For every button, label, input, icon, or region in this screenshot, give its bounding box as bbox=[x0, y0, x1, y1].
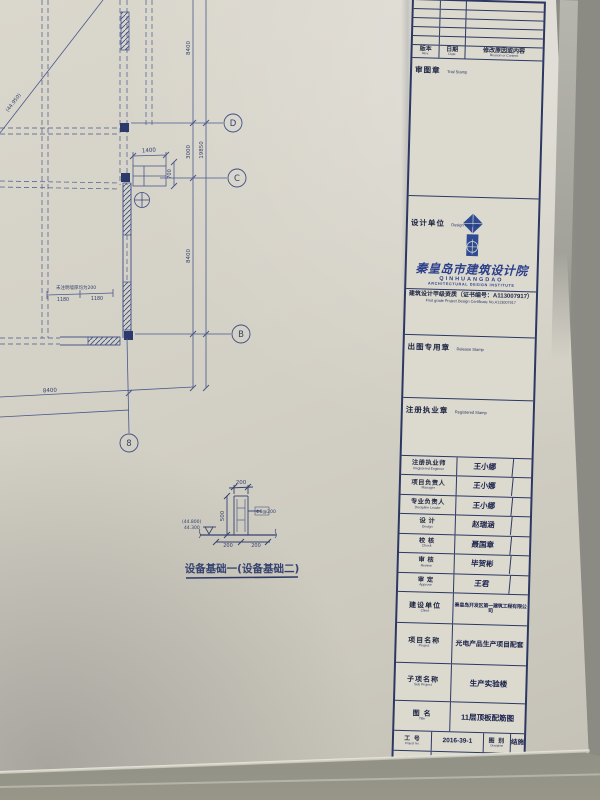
detail-dim-bottom-left: 200 bbox=[223, 543, 233, 549]
project-label-en: Project bbox=[419, 645, 430, 649]
drawing-title-value: 11层顶板配筋图 bbox=[450, 702, 525, 733]
personnel-role-en: Discipline Leader bbox=[415, 506, 441, 510]
project-name-row: 项目名称Project 光电产品生产项目配套 bbox=[396, 623, 527, 667]
grid-bubble-b: B bbox=[238, 330, 244, 340]
design-unit-label-cn: 设计单位 bbox=[411, 218, 445, 228]
dim-19850: 19850 bbox=[199, 141, 205, 159]
personnel-name: 聂国章 bbox=[454, 535, 512, 555]
grid-bubble-c: C bbox=[234, 174, 240, 184]
detail-callout-symbol bbox=[135, 193, 150, 208]
plan-linework bbox=[0, 0, 231, 433]
job-label-en: Project No. bbox=[405, 742, 420, 746]
slope-elevation-label: (44.950) bbox=[5, 93, 23, 114]
personnel-role-en: Approve bbox=[419, 584, 432, 588]
detail-rebar-label: Φ8@200 bbox=[256, 509, 276, 515]
personnel-role-en: Registered Engineer bbox=[413, 467, 444, 471]
personnel-name: 毕贺彬 bbox=[454, 554, 512, 574]
personnel-name: 王小娜 bbox=[455, 496, 513, 516]
discipline-label-en: Discipline bbox=[490, 744, 503, 747]
dim-bottom-8400: 8400 bbox=[43, 388, 58, 395]
registered-stamp-section: 注册执业章 Registered Stamp bbox=[402, 398, 534, 459]
release-stamp-section: 出图专用章 Release Stamp bbox=[403, 335, 535, 401]
sub-project-label-en: Sub Project bbox=[414, 684, 432, 688]
client-label-en: Client bbox=[421, 609, 430, 613]
design-unit-label-en: Design Institute bbox=[451, 222, 479, 228]
personnel-role-en: Review bbox=[421, 564, 432, 568]
certificate-box: 建筑设计甲级资质（证书编号：A113007917） First grade Pr… bbox=[406, 288, 536, 305]
client-value: 秦皇岛开发区第一建筑工程有限公司 bbox=[453, 593, 528, 625]
dim-1180-a: 1180 bbox=[57, 297, 69, 303]
drawing-title-row: 图 名Title 11层顶板配筋图 bbox=[394, 701, 525, 735]
detail-elev-paren: (44.800) bbox=[182, 519, 202, 525]
grid-bubble-8: 8 bbox=[126, 439, 131, 449]
grid-bubbles bbox=[120, 114, 250, 452]
registered-stamp-label-en: Registered Stamp bbox=[455, 409, 487, 415]
dim-700: 700 bbox=[167, 169, 173, 179]
discipline-value: 结施 bbox=[511, 734, 525, 753]
project-name-value: 光电产品生产项目配套 bbox=[452, 624, 527, 665]
design-institute-section: 设计单位 Design Institute 秦皇岛市建筑设计院 QINHUANG… bbox=[405, 211, 538, 338]
client-row: 建设单位Client 秦皇岛开发区第一建筑工程有限公司 bbox=[397, 592, 528, 627]
release-stamp-label-en: Release Stamp bbox=[456, 346, 483, 352]
rev-label-en: Rev. bbox=[422, 53, 429, 57]
personnel-role-en: Design bbox=[422, 525, 433, 529]
personnel-name: 王小娜 bbox=[456, 477, 514, 497]
personnel-name: 赵瑞涵 bbox=[455, 516, 513, 536]
personnel-name: 王小娜 bbox=[456, 457, 514, 477]
dim-mid-8400: 8400 bbox=[186, 249, 192, 263]
personnel-table: 注册执业师Registered Engineer 王小娜 项目负责人Manage… bbox=[398, 456, 532, 595]
detail-dim-bottom-right: 200 bbox=[251, 543, 261, 549]
dim-1180-b: 1180 bbox=[91, 296, 103, 302]
registered-stamp-label-cn: 注册执业章 bbox=[406, 405, 449, 415]
personnel-role-en: Manager bbox=[421, 487, 434, 491]
detail-dim-top-200: 200 bbox=[236, 480, 247, 486]
title-block: 版本 Rev. 日期 Date 修改原因或内容 Reason or Conten… bbox=[391, 0, 546, 763]
detail-elev: 44.300 bbox=[184, 525, 200, 531]
release-stamp-label-cn: 出图专用章 bbox=[407, 342, 450, 352]
personnel-name: 王君 bbox=[453, 574, 511, 594]
job-number-value: 2016-39-1 bbox=[432, 732, 484, 752]
date-label-en: Date bbox=[448, 53, 455, 57]
reason-label-en: Reason or Content bbox=[490, 54, 519, 58]
personnel-row: 审 定Approve 王君 bbox=[398, 572, 528, 594]
trial-stamp-label-en: Trial Stamp bbox=[447, 69, 467, 75]
wall-note: 未注明墙厚均为200 bbox=[56, 284, 96, 291]
detail-dim-500: 500 bbox=[220, 510, 226, 521]
dim-3000: 3000 bbox=[186, 145, 192, 159]
drawing-title-label-en: Title bbox=[419, 718, 425, 722]
dim-1400: 1400 bbox=[142, 147, 157, 154]
grid-bubble-d: D bbox=[230, 119, 237, 129]
trial-stamp-section: 审图章 Trial Stamp bbox=[409, 58, 543, 199]
dim-top-8400: 8400 bbox=[186, 41, 192, 55]
personnel-role-en: Check bbox=[422, 545, 432, 549]
drawing-sheet: D C B 8 8400 3000 19850 8400 1400 700 84… bbox=[0, 0, 600, 800]
sub-project-row: 子项名称Sub Project 生产实验楼 bbox=[395, 663, 526, 705]
trial-stamp-label-cn: 审图章 bbox=[415, 65, 441, 75]
sub-project-value: 生产实验楼 bbox=[451, 664, 526, 703]
detail-title: 设备基础一(设备基础二) bbox=[185, 562, 300, 575]
